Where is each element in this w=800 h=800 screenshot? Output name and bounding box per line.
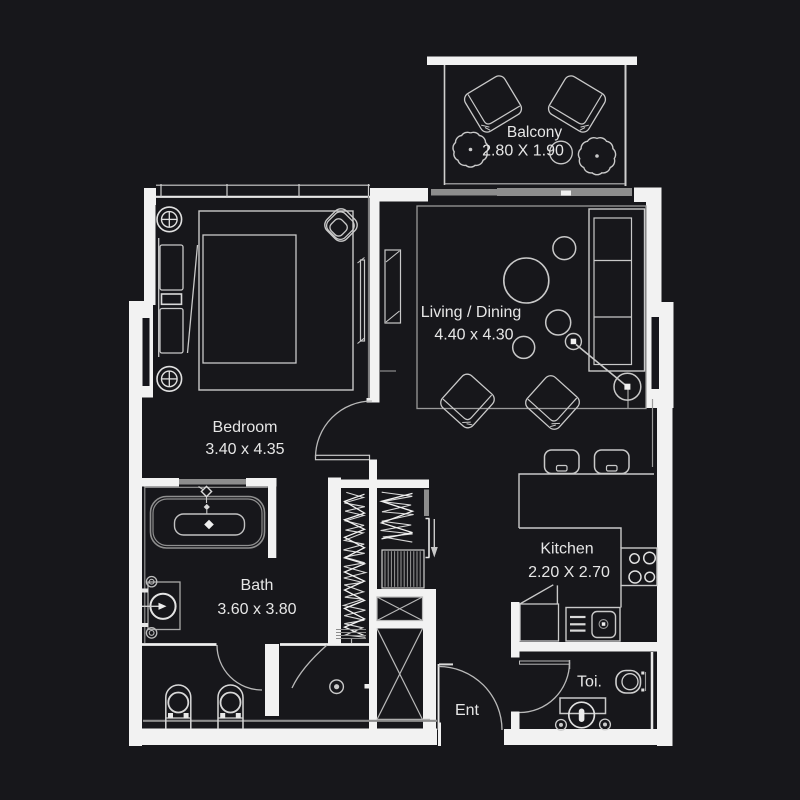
svg-text:Bath: Bath (241, 577, 274, 594)
svg-text:Bedroom: Bedroom (213, 419, 278, 436)
svg-text:3.60 x 3.80: 3.60 x 3.80 (217, 601, 296, 618)
svg-text:3.40 x 4.35: 3.40 x 4.35 (205, 441, 284, 458)
svg-text:Ent: Ent (455, 702, 480, 719)
svg-text:2.80 X 1.90: 2.80 X 1.90 (482, 143, 564, 160)
svg-text:Balcony: Balcony (507, 124, 562, 141)
svg-text:Kitchen: Kitchen (540, 541, 593, 558)
svg-text:Toi.: Toi. (577, 674, 602, 691)
svg-text:2.20 X 2.70: 2.20 X 2.70 (528, 564, 610, 581)
svg-text:4.40 x 4.30: 4.40 x 4.30 (434, 327, 513, 344)
svg-text:Living / Dining: Living / Dining (421, 304, 522, 321)
